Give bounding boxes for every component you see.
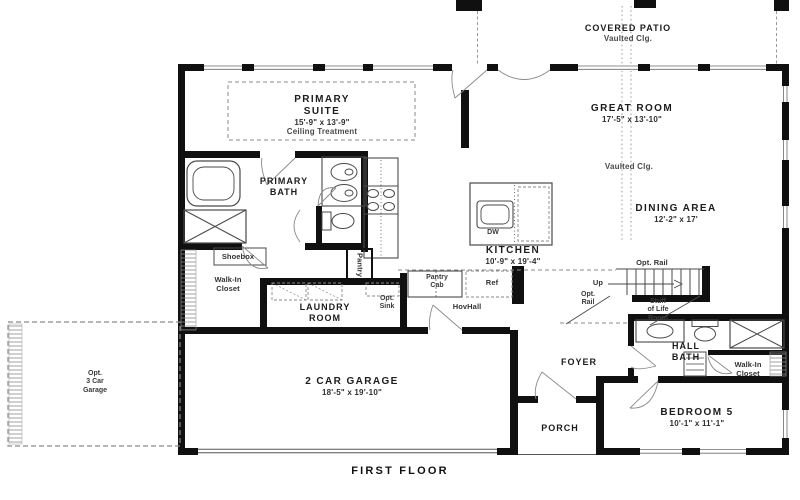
label-walk-in-closet-bed5: Walk-In Closet (734, 361, 761, 379)
label-stuff-of-life: Stuff of Life Room (648, 298, 669, 323)
label-garage: 2 CAR GARAGE 18'-5" x 19'-10" (305, 376, 398, 397)
label-great-room-ceiling: Vaulted Clg. (605, 162, 653, 171)
label-primary-bath: PRIMARY BATH (260, 176, 308, 197)
label-foyer: FOYER (561, 357, 597, 368)
bathtub (187, 161, 240, 206)
label-fridge: Ref (486, 279, 498, 288)
bedroom5-door (630, 381, 658, 408)
label-great-room: GREAT ROOM 17'-5" x 13'-10" (591, 103, 673, 124)
label-dining-area: DINING AREA 12'-2" x 17' (635, 203, 716, 224)
label-pantry: Pantry (355, 253, 364, 277)
hall-vanity (636, 320, 684, 342)
kitchen-counter (364, 158, 398, 258)
label-bedroom5: BEDROOM 5 10'-1" x 11'-1" (660, 407, 733, 428)
primary-suite-door (452, 70, 487, 98)
label-primary-suite: PRIMARY SUITE 15'-9" x 13'-9" Ceiling Tr… (287, 94, 358, 136)
hall-bath-door (631, 346, 656, 369)
double-vanity (322, 157, 366, 206)
label-opt-rail-side: Opt. Rail (581, 291, 595, 308)
primary-toilet (322, 212, 331, 230)
label-opt-rail-top: Opt. Rail (636, 259, 668, 268)
floor-plan-page: COVERED PATIO Vaulted Clg. PRIMARY SUITE… (0, 0, 800, 500)
label-walk-in-closet-primary: Walk-In Closet (214, 276, 241, 294)
label-pantry-cab: Pantry Cab (426, 274, 448, 291)
label-covered-patio: COVERED PATIO Vaulted Clg. (585, 23, 671, 43)
label-hall-bath: HALL BATH (672, 341, 700, 362)
label-hov-hall: HovHall (453, 303, 482, 312)
top-wall-windows (204, 64, 766, 71)
label-porch: PORCH (541, 423, 579, 434)
kitchen-island (470, 183, 552, 245)
bed5-closet-door (708, 355, 732, 374)
island-bar-outline (518, 187, 549, 241)
front-door (535, 372, 576, 399)
label-kitchen: KITCHEN 10'-9" x 19'-4" (485, 245, 540, 266)
plan-title: FIRST FLOOR (351, 465, 449, 478)
exterior-walls (178, 64, 789, 455)
label-dishwasher: DW (487, 229, 499, 237)
hall-bath-fixtures (636, 320, 784, 376)
label-opt-sink: Opt. Sink (380, 295, 395, 312)
label-laundry-room: LAUNDRY ROOM (300, 302, 351, 323)
label-stairs-up: Up (593, 279, 603, 288)
shower-door (294, 210, 300, 242)
label-shoebox: Shoebox (222, 253, 254, 262)
patio-door (498, 70, 550, 80)
label-opt-3car-garage: Opt. 3 Car Garage (83, 370, 107, 395)
toilet-room-door (318, 188, 336, 206)
